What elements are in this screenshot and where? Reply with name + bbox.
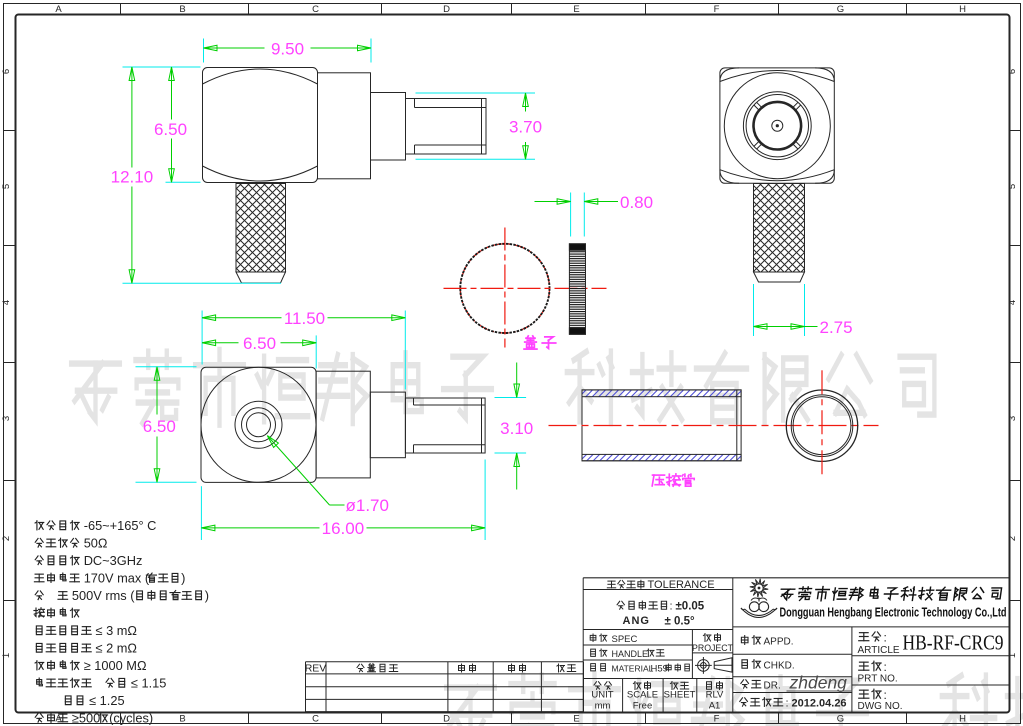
svg-text::: : <box>786 698 789 710</box>
svg-text:2: 2 <box>1007 536 1018 541</box>
svg-text:2012.04.26: 2012.04.26 <box>792 698 847 710</box>
svg-text:zhdeng: zhdeng <box>789 673 848 693</box>
svg-text:0.80: 0.80 <box>620 193 653 212</box>
svg-text:DR.: DR. <box>764 681 781 692</box>
svg-text:SCALE: SCALE <box>627 690 658 701</box>
svg-text:ø1.70: ø1.70 <box>346 496 389 515</box>
svg-text:2: 2 <box>1 536 12 541</box>
svg-text:DWG NO.: DWG NO. <box>858 701 903 712</box>
svg-text:(cycles): (cycles) <box>109 711 153 726</box>
svg-text:50Ω: 50Ω <box>84 536 108 551</box>
svg-text:A: A <box>55 4 62 15</box>
svg-text:): ) <box>205 588 209 603</box>
svg-text:Dongguan Hengbang Electronic T: Dongguan Hengbang Electronic Technology … <box>780 606 1007 620</box>
svg-text:C: C <box>312 714 319 725</box>
svg-text:≤ 2 mΩ: ≤ 2 mΩ <box>96 641 138 656</box>
svg-text:G: G <box>837 4 844 15</box>
svg-text:DC~3GHz: DC~3GHz <box>84 553 143 568</box>
svg-text:A1: A1 <box>709 701 721 712</box>
svg-text:12.10: 12.10 <box>111 168 154 187</box>
svg-text:HB-RF-CRC9: HB-RF-CRC9 <box>903 631 1004 655</box>
svg-text:11.50: 11.50 <box>284 309 325 328</box>
svg-text:3: 3 <box>1007 416 1018 421</box>
svg-text:≤ 1.15: ≤ 1.15 <box>131 676 167 691</box>
svg-text:6.50: 6.50 <box>154 120 187 139</box>
svg-text:APPD.: APPD. <box>764 637 794 648</box>
svg-text:): ) <box>181 571 185 586</box>
svg-text:ANG: ANG <box>623 615 650 627</box>
svg-text:H: H <box>959 4 966 15</box>
svg-text:C: C <box>312 4 319 15</box>
svg-text:≥ 1000 MΩ: ≥ 1000 MΩ <box>84 658 147 673</box>
svg-text:H: H <box>959 714 966 725</box>
svg-text:3.70: 3.70 <box>509 118 542 137</box>
svg-text:PRT NO.: PRT NO. <box>858 674 898 685</box>
svg-text:500V rms (: 500V rms ( <box>72 588 135 603</box>
svg-text:E: E <box>573 714 579 725</box>
svg-text:HANDLE: HANDLE <box>612 649 649 659</box>
svg-text:B: B <box>179 4 185 15</box>
svg-text:A: A <box>55 714 62 725</box>
svg-text:D: D <box>443 4 450 15</box>
svg-text:SPEC: SPEC <box>612 634 638 645</box>
svg-text:H59: H59 <box>651 664 668 675</box>
svg-text::: : <box>884 631 887 645</box>
svg-text:≤ 1.25: ≤ 1.25 <box>89 693 125 708</box>
svg-text:D: D <box>443 714 450 725</box>
svg-text:RLV: RLV <box>706 690 724 701</box>
svg-text:16.00: 16.00 <box>322 519 365 538</box>
svg-text:±0.05: ±0.05 <box>676 601 705 613</box>
svg-text:Free: Free <box>633 701 653 712</box>
svg-text:E: E <box>573 4 579 15</box>
svg-text:6.50: 6.50 <box>243 334 276 353</box>
svg-text:B: B <box>179 714 185 725</box>
svg-text:9.50: 9.50 <box>271 40 304 59</box>
svg-text:UNIT: UNIT <box>591 690 613 701</box>
svg-text::: : <box>670 601 673 613</box>
svg-text:G: G <box>837 714 844 725</box>
svg-text:SHEET: SHEET <box>664 690 696 701</box>
svg-text:≥500: ≥500 <box>72 711 100 726</box>
svg-text::: : <box>884 688 887 702</box>
svg-text:1: 1 <box>1 653 12 658</box>
svg-text:170V max (: 170V max ( <box>84 571 150 586</box>
svg-text:± 0.5°: ± 0.5° <box>665 616 695 628</box>
svg-text:≤ 3 mΩ: ≤ 3 mΩ <box>96 623 138 638</box>
svg-text:REV: REV <box>305 663 327 675</box>
svg-text:MATERIAL: MATERIAL <box>612 664 654 674</box>
svg-text:6: 6 <box>1 69 12 74</box>
svg-text:ARTICLE: ARTICLE <box>858 645 900 656</box>
svg-text:4: 4 <box>1007 300 1018 305</box>
svg-text:F: F <box>714 714 720 725</box>
svg-text:6: 6 <box>1007 69 1018 74</box>
svg-text:mm: mm <box>595 701 611 712</box>
svg-text::: : <box>884 660 887 674</box>
svg-text:5: 5 <box>1007 184 1018 189</box>
svg-text:3.10: 3.10 <box>500 419 533 438</box>
svg-text:TOLERANCE: TOLERANCE <box>648 579 715 591</box>
svg-text:F: F <box>714 4 720 15</box>
svg-text:2.75: 2.75 <box>820 318 853 337</box>
svg-text:PROJECT: PROJECT <box>692 643 734 653</box>
svg-text:6.50: 6.50 <box>143 417 176 436</box>
svg-text:-65~+165° C: -65~+165° C <box>84 518 157 533</box>
svg-text:3: 3 <box>1 416 12 421</box>
svg-text:5: 5 <box>1 184 12 189</box>
svg-text:CHKD.: CHKD. <box>764 661 795 672</box>
svg-text:4: 4 <box>1 300 12 305</box>
